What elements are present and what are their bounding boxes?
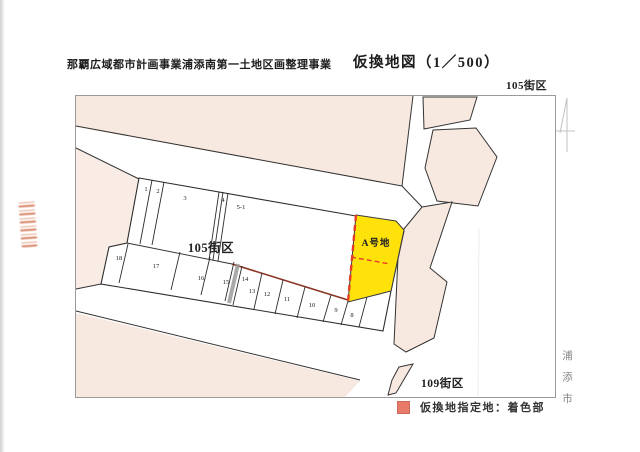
parcel-number: 14 bbox=[242, 276, 249, 283]
parcel-number: 8 bbox=[350, 312, 353, 319]
parcel-number: 13 bbox=[249, 288, 256, 295]
parcel-number: 12 bbox=[264, 291, 271, 298]
north-arrow-icon bbox=[556, 98, 575, 152]
block-105-label: 105街区 bbox=[188, 240, 234, 255]
parcel-number: 3 bbox=[183, 195, 186, 202]
cadastral-map: 105街区 A号地 109街区 1 2 3 4 5-1 18 17 16 15 … bbox=[0, 0, 640, 452]
parcel-number: 15 bbox=[223, 279, 230, 286]
parcel-number: 1 bbox=[144, 186, 147, 193]
parcel-number: 2 bbox=[156, 188, 159, 195]
parcel-number: 9 bbox=[334, 307, 337, 314]
parcel-number: 5-1 bbox=[237, 204, 246, 211]
parcel-a-label: A号地 bbox=[362, 237, 391, 249]
block-109-label: 109街区 bbox=[421, 376, 464, 390]
parcel-number: 11 bbox=[284, 296, 290, 303]
parcel-number: 18 bbox=[116, 255, 123, 262]
parcel-number: 10 bbox=[309, 302, 316, 309]
parcel-number: 16 bbox=[198, 275, 205, 282]
parcel-number: 17 bbox=[153, 263, 160, 270]
